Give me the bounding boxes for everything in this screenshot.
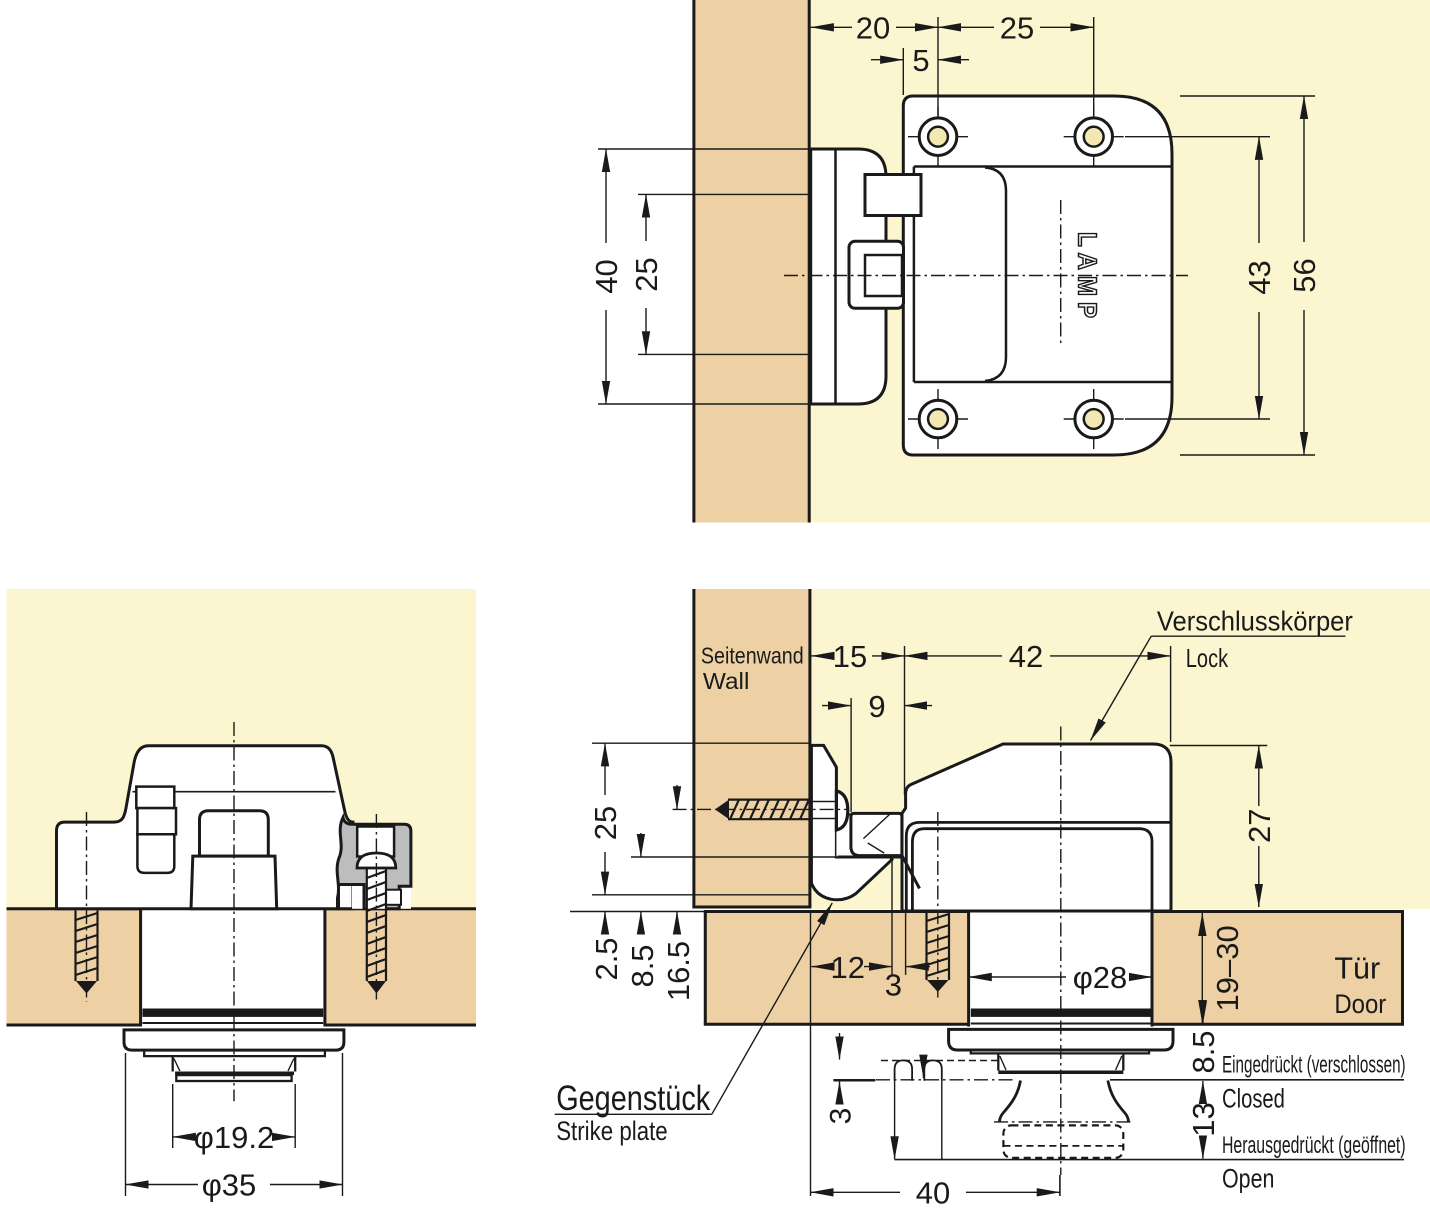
svg-text:Verschlusskörper: Verschlusskörper bbox=[1157, 605, 1353, 636]
svg-text:15: 15 bbox=[833, 639, 867, 674]
svg-text:Eingedrückt (verschlossen): Eingedrückt (verschlossen) bbox=[1222, 1052, 1406, 1079]
svg-text:5: 5 bbox=[912, 43, 929, 78]
svg-text:40: 40 bbox=[589, 259, 624, 293]
svg-text:Gegenstück: Gegenstück bbox=[556, 1079, 710, 1118]
svg-text:φ35: φ35 bbox=[202, 1168, 257, 1203]
svg-text:40: 40 bbox=[916, 1176, 950, 1211]
svg-text:8.5: 8.5 bbox=[625, 944, 660, 987]
svg-text:25: 25 bbox=[588, 806, 623, 840]
svg-text:25: 25 bbox=[1000, 11, 1034, 46]
svg-text:Herausgedrückt (geöffnet): Herausgedrückt (geöffnet) bbox=[1222, 1132, 1406, 1159]
svg-text:Strike plate: Strike plate bbox=[556, 1116, 668, 1146]
svg-text:2.5: 2.5 bbox=[589, 937, 624, 980]
svg-text:Door: Door bbox=[1334, 989, 1386, 1019]
svg-text:16.5: 16.5 bbox=[661, 941, 696, 1001]
svg-text:27: 27 bbox=[1242, 809, 1277, 843]
svg-text:19–30: 19–30 bbox=[1210, 925, 1245, 1011]
svg-text:8.5: 8.5 bbox=[1186, 1030, 1221, 1073]
svg-text:φ19.2: φ19.2 bbox=[194, 1120, 274, 1155]
svg-text:Tür: Tür bbox=[1334, 951, 1380, 986]
svg-text:Closed: Closed bbox=[1222, 1083, 1285, 1113]
svg-text:LAMP: LAMP bbox=[1073, 232, 1103, 324]
svg-text:Wall: Wall bbox=[703, 668, 750, 694]
svg-text:25: 25 bbox=[629, 257, 664, 291]
svg-text:42: 42 bbox=[1009, 639, 1043, 674]
svg-text:3: 3 bbox=[825, 1108, 858, 1125]
svg-text:13: 13 bbox=[1186, 1102, 1221, 1136]
svg-text:56: 56 bbox=[1287, 258, 1322, 292]
svg-text:12: 12 bbox=[830, 950, 864, 985]
svg-text:Seitenwand: Seitenwand bbox=[701, 643, 804, 669]
svg-text:Lock: Lock bbox=[1186, 643, 1229, 673]
svg-text:9: 9 bbox=[868, 689, 885, 724]
svg-text:3: 3 bbox=[885, 967, 902, 1002]
svg-text:Open: Open bbox=[1222, 1164, 1274, 1194]
svg-text:φ28: φ28 bbox=[1073, 960, 1128, 995]
svg-text:43: 43 bbox=[1242, 260, 1277, 294]
svg-text:20: 20 bbox=[856, 11, 890, 46]
